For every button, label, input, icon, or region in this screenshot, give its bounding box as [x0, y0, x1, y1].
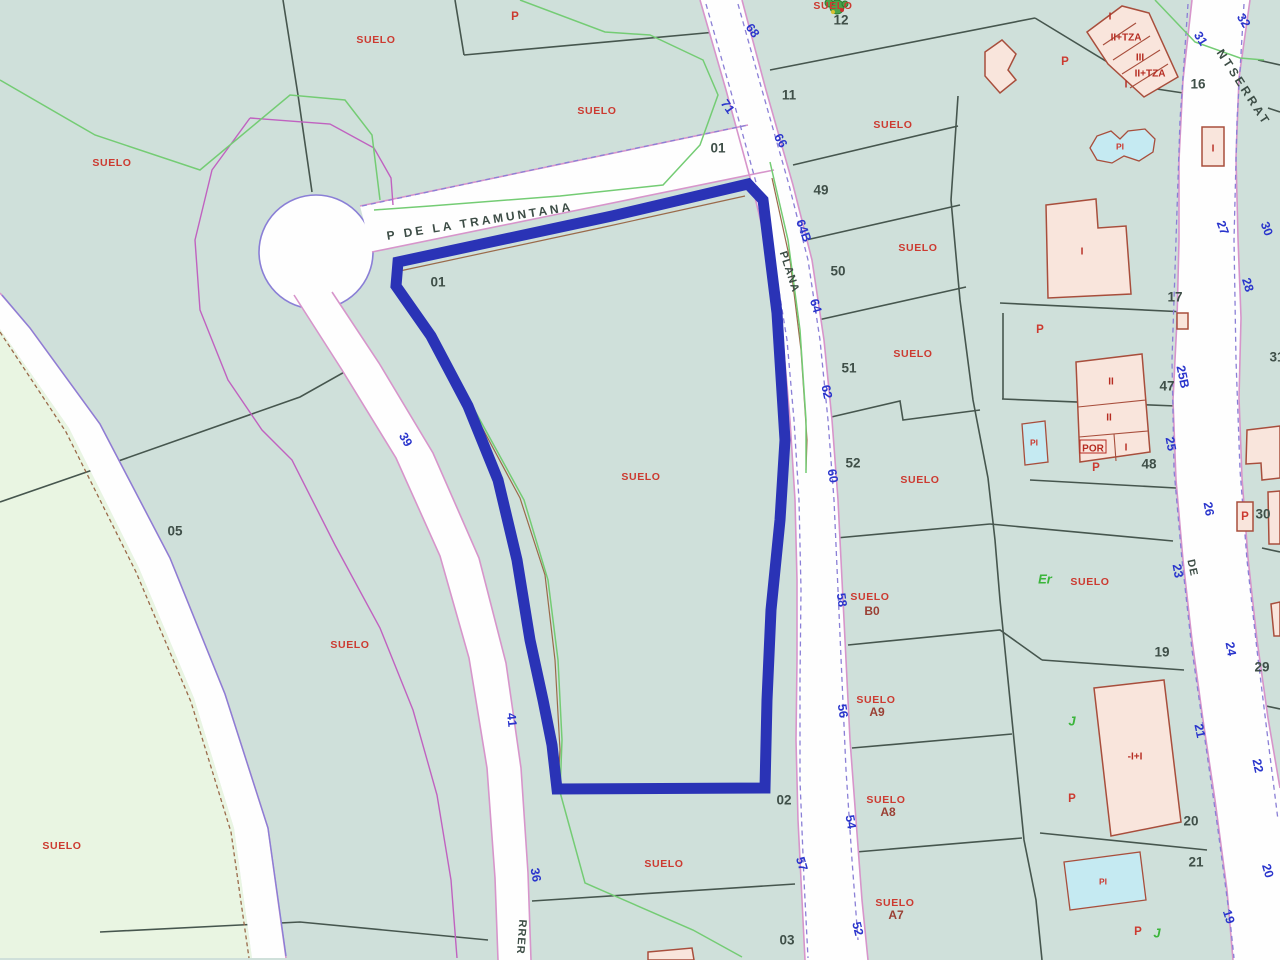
label-parcel-number: 29 — [1254, 660, 1269, 675]
label-porch-code: P — [1036, 324, 1044, 336]
label-parcel-code: A9 — [869, 705, 885, 719]
label-suelo: SUELO — [356, 34, 395, 46]
label-suelo: SUELO — [856, 694, 895, 706]
label-parcel-number: 11 — [782, 88, 797, 103]
label-house-number: 23 — [1170, 563, 1186, 579]
label-porch-code: P — [1068, 793, 1076, 805]
label-landuse-code: J — [1153, 925, 1161, 940]
label-suelo: SUELO — [621, 471, 660, 483]
label-suelo: SUELO — [850, 591, 889, 603]
label-suelo: SUELO — [92, 157, 131, 169]
label-suelo: SUELO — [898, 242, 937, 254]
label-pool: PI — [1116, 141, 1124, 151]
building-footprint — [1177, 313, 1188, 329]
label-parcel-number: 51 — [841, 361, 857, 376]
label-building-floors: I — [1109, 12, 1112, 23]
label-suelo: SUELO — [900, 474, 939, 486]
label-parcel-number: 31 — [1269, 350, 1280, 365]
label-parcel-number: 50 — [830, 264, 845, 279]
label-suelo: SUELO — [330, 639, 369, 651]
label-suelo: SUELO — [577, 105, 616, 117]
label-porch-code: P — [1241, 511, 1249, 523]
label-suelo: SUELO — [813, 0, 852, 12]
label-parcel-code: A8 — [880, 805, 896, 819]
cadastral-map-canvas[interactable]: SUELOSUELOSUELOSUELOSUELOSUELOSUELOSUELO… — [0, 0, 1280, 960]
label-building-floors: -I+I — [1128, 752, 1143, 763]
label-parcel-number: 49 — [813, 183, 828, 198]
label-parcel-number: 48 — [1141, 457, 1157, 472]
label-pool: PI — [1099, 876, 1107, 886]
label-building-floors: II — [1108, 377, 1114, 388]
label-parcel-number: 01 — [430, 275, 446, 290]
label-building-floors: I — [1125, 443, 1128, 454]
label-parcel-number: 16 — [1190, 77, 1206, 92]
label-building-floors: II+TZA — [1135, 69, 1166, 80]
label-parcel-number: 05 — [167, 524, 183, 539]
label-parcel-number: 20 — [1183, 814, 1198, 829]
cul-de-sac-bulb — [259, 195, 373, 309]
label-house-number: 36 — [528, 867, 544, 883]
label-parcel-number: 19 — [1154, 645, 1169, 660]
label-house-number: 26 — [1201, 501, 1217, 517]
label-parcel-number: 12 — [833, 13, 848, 28]
label-parcel-number: 47 — [1159, 379, 1174, 394]
label-parcel-code: A7 — [888, 908, 904, 922]
label-parcel-code: B0 — [864, 604, 880, 618]
label-suelo: SUELO — [893, 348, 932, 360]
label-building-floors: II — [1106, 413, 1112, 424]
label-parcel-number: 30 — [1255, 507, 1270, 522]
label-house-number: 24 — [1223, 641, 1239, 657]
label-parcel-number: 03 — [779, 933, 795, 948]
label-suelo: SUELO — [42, 840, 81, 852]
label-house-number: 58 — [834, 592, 850, 608]
label-house-number: 22 — [1249, 758, 1266, 775]
label-house-number: 54 — [843, 814, 859, 830]
cadastral-map-viewport[interactable]: SUELOSUELOSUELOSUELOSUELOSUELOSUELOSUELO… — [0, 0, 1280, 960]
label-suelo: SUELO — [875, 897, 914, 909]
label-landuse-code: J — [1068, 713, 1076, 728]
label-parcel-number: 17 — [1167, 290, 1182, 305]
label-building-floors: III — [1136, 53, 1145, 64]
label-building-floors: POR — [1082, 444, 1104, 455]
label-building-floors: II+TZA — [1111, 33, 1142, 44]
label-suelo: SUELO — [866, 794, 905, 806]
label-suelo: SUELO — [873, 119, 912, 131]
label-parcel-number: 02 — [776, 793, 791, 808]
label-parcel-number: 52 — [845, 456, 860, 471]
label-building-floors: I — [1212, 144, 1215, 155]
label-porch-code: P — [1092, 462, 1100, 474]
label-building-floors: I — [1125, 80, 1128, 91]
label-porch-code: P — [1134, 926, 1142, 938]
label-porch-code: P — [1061, 56, 1069, 68]
label-house-number: 56 — [835, 703, 851, 719]
label-suelo: SUELO — [1070, 576, 1109, 588]
label-porch-code: P — [511, 11, 519, 23]
label-landuse-code: Er — [1038, 571, 1053, 586]
label-parcel-number: 01 — [710, 141, 726, 156]
label-building-floors: I — [1081, 247, 1084, 258]
label-pool: PI — [1030, 437, 1038, 447]
label-suelo: SUELO — [644, 858, 683, 870]
label-parcel-number: 21 — [1188, 855, 1204, 870]
label-house-number: 25 — [1163, 436, 1179, 452]
label-house-number: 62 — [818, 384, 835, 401]
label-street-name: RRER — [514, 919, 528, 955]
label-house-number: 21 — [1191, 723, 1208, 740]
label-house-number: 41 — [504, 712, 519, 727]
label-house-number: 60 — [825, 468, 841, 484]
